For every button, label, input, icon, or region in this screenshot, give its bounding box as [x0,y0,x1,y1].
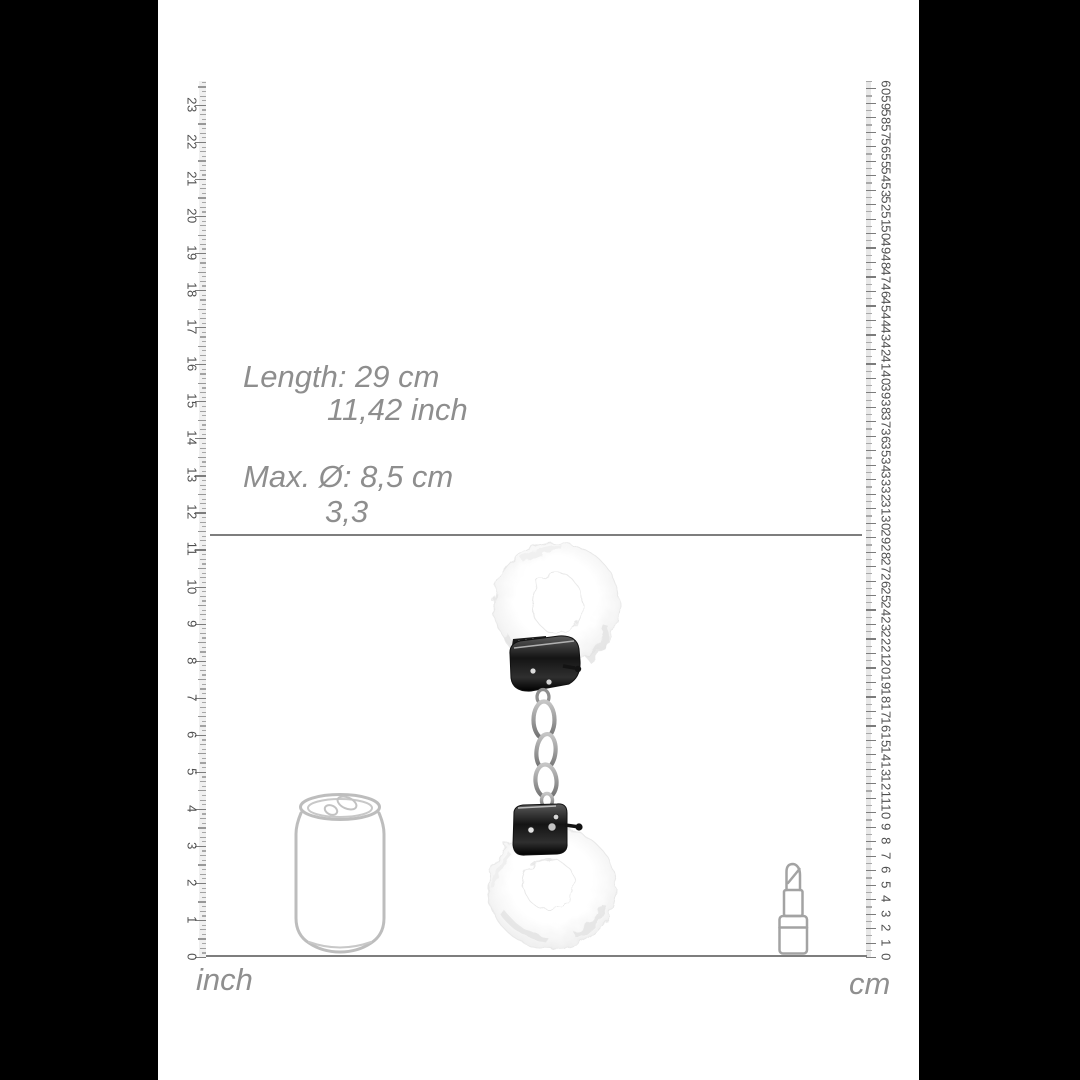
soda-can-icon [296,794,384,952]
can-pull-tab-icon [323,794,358,817]
handcuffs-illustration [488,543,620,949]
lipstick-icon [780,864,808,954]
top-lock-body [510,636,581,705]
product-size-chart: 01234567891011121314151617181920212223 0… [0,0,1080,1080]
illustrations-layer [0,0,1080,1080]
chain [534,702,558,808]
